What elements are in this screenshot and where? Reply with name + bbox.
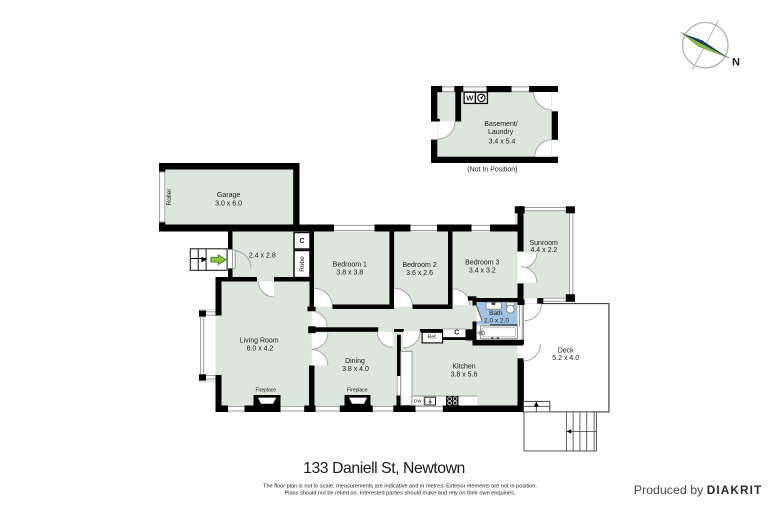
svg-text:Fireplace: Fireplace — [256, 387, 277, 393]
svg-text:N: N — [732, 57, 740, 69]
svg-text:3.6 x 2.6: 3.6 x 2.6 — [406, 270, 433, 277]
svg-text:Deck: Deck — [558, 348, 574, 355]
svg-text:Bath: Bath — [489, 310, 503, 317]
svg-text:3.0 x 6.0: 3.0 x 6.0 — [215, 201, 242, 208]
svg-text:C: C — [454, 330, 459, 337]
svg-text:3.8 x 5.6: 3.8 x 5.6 — [451, 371, 478, 378]
svg-text:Dining: Dining — [345, 358, 365, 365]
svg-text:6.0 x 4.2: 6.0 x 4.2 — [247, 346, 274, 353]
svg-text:Produced by DIAKRIT: Produced by DIAKRIT — [634, 483, 763, 497]
svg-text:3.8 x 3.8: 3.8 x 3.8 — [336, 270, 363, 277]
svg-text:(Not In Position): (Not In Position) — [467, 167, 517, 174]
svg-text:Plans should not be relied on.: Plans should not be relied on. Intereste… — [284, 490, 515, 496]
svg-text:3.4 x 5.4: 3.4 x 5.4 — [489, 138, 516, 145]
svg-text:Bedroom 3: Bedroom 3 — [465, 260, 499, 267]
svg-text:Kitchen: Kitchen — [452, 364, 475, 371]
svg-text:Bedroom 1: Bedroom 1 — [333, 262, 367, 269]
svg-text:W: W — [466, 94, 474, 103]
svg-text:3.4 x 3.2: 3.4 x 3.2 — [469, 268, 496, 275]
svg-text:DW: DW — [414, 399, 422, 404]
svg-text:Bedroom 2: Bedroom 2 — [402, 262, 436, 269]
svg-text:4.4 x 2.2: 4.4 x 2.2 — [530, 247, 557, 254]
svg-text:2.4 x 2.8: 2.4 x 2.8 — [249, 253, 276, 260]
svg-text:Ref.: Ref. — [428, 334, 438, 340]
svg-text:5.2 x 4.0: 5.2 x 4.0 — [552, 355, 579, 362]
svg-text:C: C — [299, 238, 304, 245]
svg-text:Fireplace: Fireplace — [347, 387, 368, 393]
svg-text:2.0 x 2.0: 2.0 x 2.0 — [484, 317, 509, 324]
svg-text:Robe: Robe — [299, 256, 306, 272]
svg-text:133 Daniell St, Newtown: 133 Daniell St, Newtown — [303, 460, 465, 477]
svg-text:Garage: Garage — [217, 192, 240, 199]
svg-text:Basement/: Basement/ — [484, 121, 518, 128]
svg-text:Roller: Roller — [166, 188, 173, 206]
svg-text:3.8 x 4.0: 3.8 x 4.0 — [342, 366, 369, 373]
svg-text:Living Room: Living Room — [240, 338, 279, 345]
svg-text:The floor plan is not to scale: The floor plan is not to scale; measurem… — [263, 483, 537, 489]
svg-text:Sunroom: Sunroom — [529, 240, 558, 247]
svg-text:Laundry: Laundry — [488, 129, 514, 136]
